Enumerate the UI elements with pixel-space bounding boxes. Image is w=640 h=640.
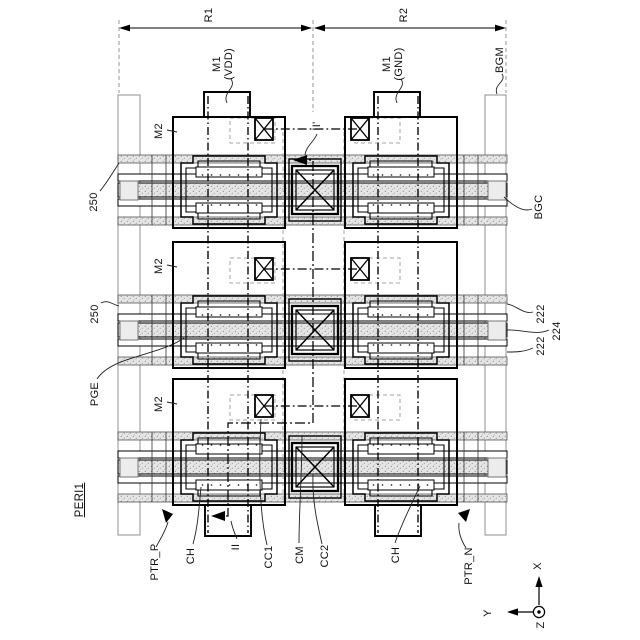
ptr-p-label: PTR_P — [149, 544, 161, 581]
axes-indicator — [507, 576, 545, 618]
label-250-row1: 250 — [88, 192, 100, 211]
ptr-n-label: PTR_N — [463, 547, 475, 585]
peri1-label: PERI1 — [74, 483, 86, 518]
ch-label-right: CH — [390, 547, 402, 564]
vdd-text: (VDD) — [223, 48, 235, 80]
label-222-top: 222 — [535, 304, 547, 323]
axis-x-label: X — [532, 562, 544, 570]
cc1-label: CC1 — [263, 546, 275, 569]
ch-label-left: CH — [185, 548, 197, 565]
m2-label-row2: M2 — [153, 258, 165, 274]
section-ii-prime-label: II' — [311, 121, 323, 130]
label-250-row2: 250 — [89, 304, 101, 323]
m1-text: M1 — [381, 47, 393, 80]
dim-label-r1: R1 — [203, 8, 215, 23]
dim-label-r2: R2 — [398, 8, 410, 23]
axis-z-label: Z — [535, 621, 547, 628]
gnd-text: (GND) — [393, 47, 405, 80]
m2-label-row1: M2 — [153, 123, 165, 139]
label-222-bottom: 222 — [535, 336, 547, 355]
pge-label: PGE — [89, 382, 101, 406]
m1-vdd-label: M1 (VDD) — [211, 48, 235, 80]
patent-layout-figure: R1 R2 M1 (VDD) M1 (GND) BGM M2 M2 M2 250… — [0, 0, 640, 640]
cc2-label: CC2 — [319, 545, 331, 568]
m1-text: M1 — [211, 48, 223, 80]
m1-gnd-label: M1 (GND) — [381, 47, 405, 80]
section-ii-label: II — [230, 544, 242, 551]
m2-label-row3: M2 — [153, 396, 165, 412]
bgm-label: BGM — [494, 47, 506, 73]
bgc-label: BGC — [533, 195, 545, 220]
dimension-annotations — [119, 20, 506, 112]
cm-label: CM — [294, 546, 306, 564]
axis-y-label: Y — [482, 609, 494, 617]
label-224: 224 — [551, 321, 563, 340]
